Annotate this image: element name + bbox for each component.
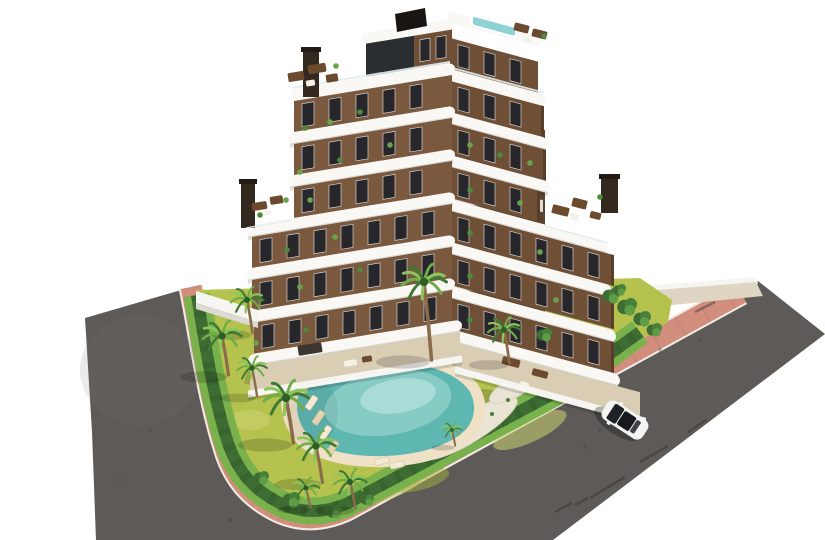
window <box>262 323 274 348</box>
window <box>484 224 495 250</box>
balcony-plant <box>497 152 503 158</box>
road-speck <box>658 348 662 352</box>
window <box>397 301 409 326</box>
window <box>510 59 521 84</box>
balcony-plant <box>517 200 523 206</box>
window <box>588 295 599 321</box>
balcony-plant <box>387 142 393 148</box>
window <box>588 339 599 365</box>
balcony-plant <box>467 230 473 236</box>
window <box>436 35 446 59</box>
balcony-plant <box>327 119 333 125</box>
window <box>536 281 547 307</box>
road-light-patch <box>80 315 200 425</box>
road-speck <box>228 518 232 522</box>
window <box>458 260 469 286</box>
window <box>562 245 573 271</box>
balcony-plant <box>357 267 363 273</box>
balcony-plant <box>467 317 473 323</box>
window <box>484 52 495 77</box>
window <box>341 224 353 249</box>
window <box>458 45 469 70</box>
window <box>588 252 599 278</box>
balcony-plant <box>357 109 363 115</box>
balcony-plant <box>527 160 533 166</box>
window <box>395 258 407 283</box>
window <box>343 310 355 335</box>
window <box>368 220 380 245</box>
window <box>410 127 422 152</box>
gravel-plant <box>506 398 510 402</box>
balcony-plant <box>332 234 338 240</box>
balcony-plant <box>283 197 289 203</box>
window <box>510 101 521 127</box>
window <box>341 267 353 292</box>
window <box>410 170 422 195</box>
window <box>484 267 495 293</box>
window <box>316 314 328 339</box>
road-speck <box>698 338 702 342</box>
road-speck <box>118 478 122 482</box>
window <box>260 238 272 263</box>
window <box>329 183 341 208</box>
window <box>562 332 573 358</box>
chimney <box>601 177 618 213</box>
balcony-plant <box>257 212 263 218</box>
road-speck <box>148 428 152 432</box>
gravel-plant <box>490 412 494 416</box>
balcony-plant <box>284 247 290 253</box>
window <box>314 229 326 254</box>
window <box>383 88 395 113</box>
window <box>302 145 314 170</box>
balcony-plant <box>297 284 303 290</box>
window <box>302 102 314 127</box>
window <box>289 319 301 344</box>
architectural-render <box>0 0 825 540</box>
balcony-plant <box>537 249 543 255</box>
window <box>422 211 434 236</box>
balcony-plant <box>253 340 259 346</box>
window <box>484 94 495 120</box>
balcony-plant <box>302 125 308 131</box>
balcony-plant <box>467 273 473 279</box>
balcony-plant <box>303 327 309 333</box>
window <box>458 87 469 113</box>
window <box>287 233 299 258</box>
window <box>484 180 495 206</box>
window <box>510 144 521 170</box>
window <box>287 276 299 301</box>
balcony-plant <box>467 187 473 193</box>
chimney-cap <box>301 47 321 52</box>
window <box>356 179 368 204</box>
balcony-plant <box>337 157 343 163</box>
architectural-render-stage <box>0 0 825 540</box>
window <box>458 130 469 156</box>
balcony-plant <box>297 169 303 175</box>
balcony-plant <box>541 33 547 39</box>
window <box>370 306 382 331</box>
balcony-plant <box>553 297 559 303</box>
balcony-plant <box>307 197 313 203</box>
window <box>510 231 521 257</box>
window <box>329 97 341 122</box>
window <box>395 215 407 240</box>
road-speck <box>583 445 587 449</box>
window <box>484 137 495 163</box>
window <box>314 272 326 297</box>
window <box>383 174 395 199</box>
window <box>368 263 380 288</box>
window <box>510 274 521 300</box>
window <box>420 38 430 62</box>
balcony-plant <box>333 63 339 69</box>
window <box>410 84 422 109</box>
window <box>458 217 469 243</box>
window <box>458 173 469 199</box>
balcony-plant <box>597 194 603 200</box>
balcony-plant <box>467 142 473 148</box>
window <box>356 93 368 118</box>
window <box>562 288 573 314</box>
chimney-cap <box>239 179 257 184</box>
window <box>510 187 521 213</box>
window <box>356 136 368 161</box>
road-speck <box>598 428 602 432</box>
chimney-cap <box>599 174 620 179</box>
